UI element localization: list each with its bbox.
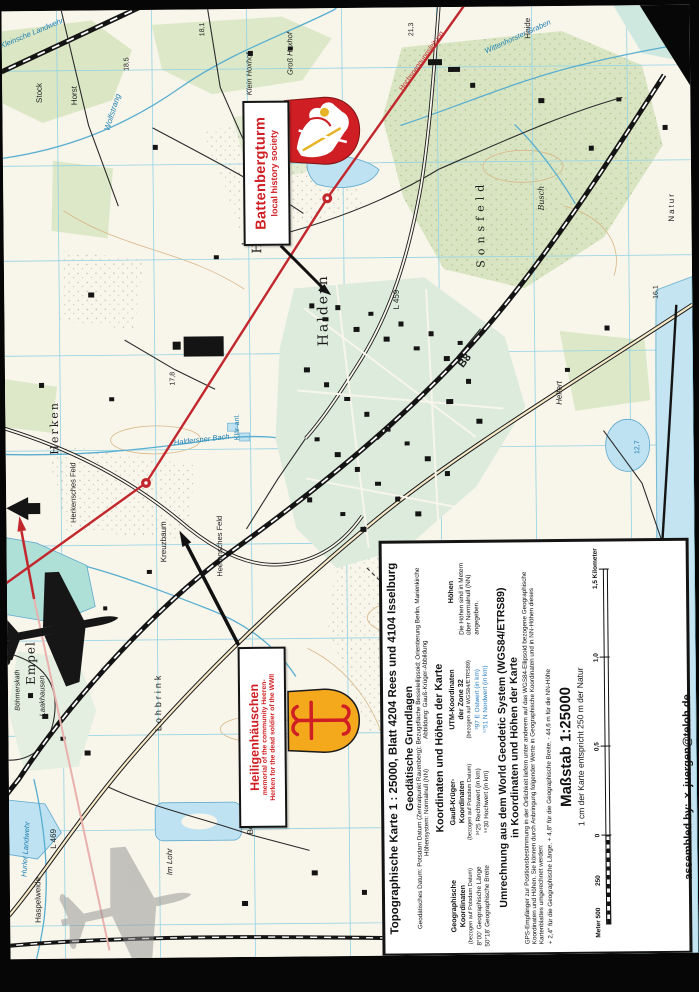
credit-mark: ×	[682, 792, 694, 799]
column-utm: UTM-Koordinaten der Zone 32 (bezogen auf…	[448, 660, 491, 739]
scale-label-250: 250	[594, 875, 601, 886]
geodetic-line2-left: Höhensystem: Normalnull (NN)	[423, 769, 431, 856]
credit-strip: assembled by: × juergen@teloh.de	[677, 550, 698, 880]
battenbergturm-title: Battenbergturm	[252, 117, 269, 230]
scale-label-meter: Meter 500	[595, 908, 602, 938]
map-sheet-title: Topographische Karte 1 : 25000, Blatt 42…	[386, 544, 402, 954]
column-heights: Höhen Die Höhen sind in Metern über Norm…	[447, 549, 490, 635]
coordinate-columns: Geographische Koordinaten (bezogen auf P…	[444, 543, 493, 953]
map-scan: HaldernEmpelHerkenLohbrinkSonsfeldBuschH…	[1, 5, 698, 960]
scale-bar: Meter 500 250 0 0,5 1,0 1,5 Kilometer	[591, 568, 624, 924]
factory-building	[184, 336, 224, 356]
utm-coordinate-row: ⁵⁷51 N Nordwert (in km)	[482, 660, 491, 738]
battenberg-crest	[284, 97, 360, 165]
scale-label-05: 0,5	[593, 742, 600, 751]
scale-label-10: 1,0	[592, 653, 599, 662]
heiligenhaeuschen-subtitle-2: Herken for the dead soldier of the WWII	[269, 674, 278, 801]
map-scan-page: { "annotations": { "battenbergturm": { "…	[0, 0, 699, 992]
scale-bar-meter-section	[605, 836, 611, 925]
geodetic-line2-right: Abbildung: Gauß-Krüger-Abbildung	[422, 640, 430, 738]
heiligenhaeuschen-label-box: Heiligenhäuschen memorial of the communi…	[238, 647, 288, 828]
scale-label-0: 0	[594, 834, 601, 838]
column-geographic: Geographische Koordinaten (bezogen auf P…	[450, 865, 493, 947]
heeren-herken-crest	[288, 689, 360, 753]
credit-label: assembled by:	[682, 803, 695, 880]
heiligenhaeuschen-title: Heiligenhäuschen	[247, 684, 262, 791]
legend-info-box: Topographische Karte 1 : 25000, Blatt 42…	[379, 538, 693, 957]
battenbergturm-label-box: Battenbergturm local history society	[242, 101, 290, 246]
column-gauss-krueger: Gauß-Krüger- Koordinaten (bezogen auf Po…	[449, 764, 492, 841]
battenbergturm-subtitle: local history society	[269, 130, 281, 217]
credit-email: juergen@teloh.de	[681, 694, 694, 787]
